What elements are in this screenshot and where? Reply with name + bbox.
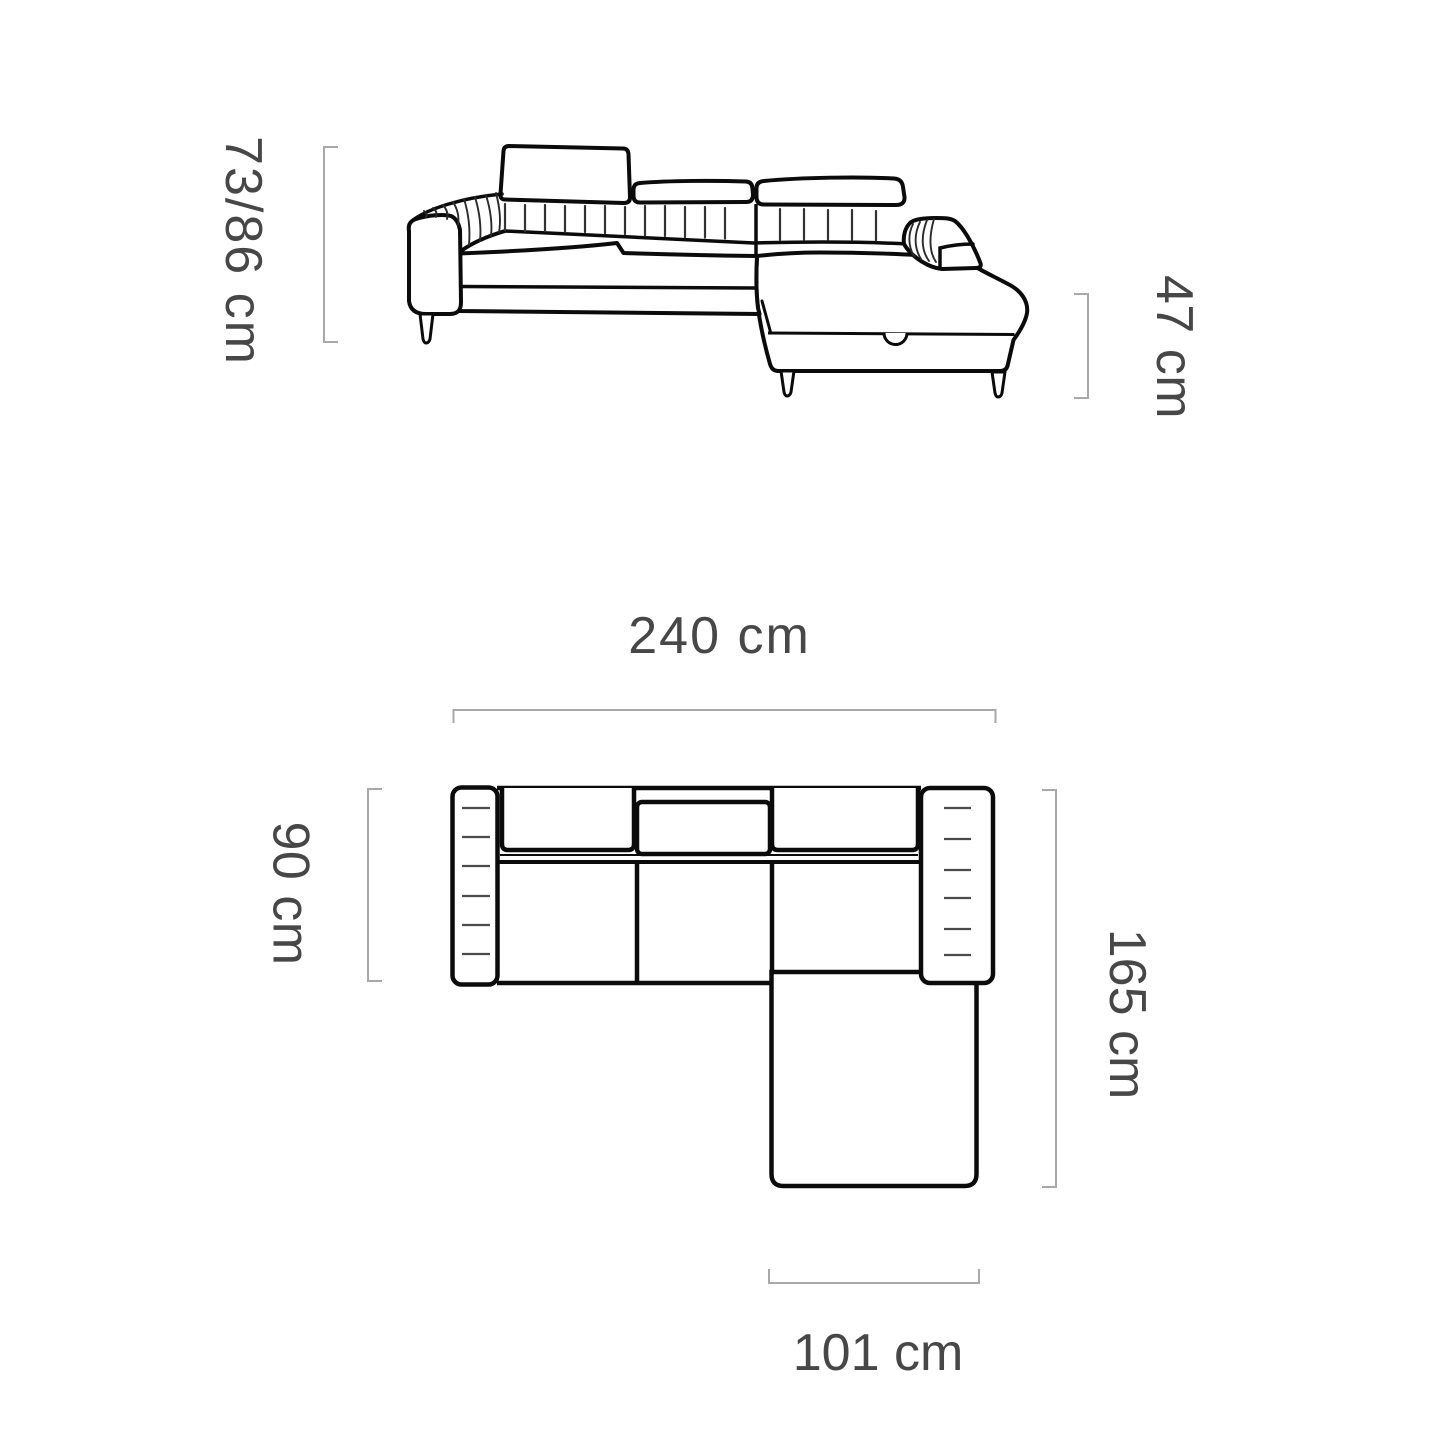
svg-text:90 cm: 90 cm — [261, 821, 319, 965]
svg-text:73/86 cm: 73/86 cm — [214, 136, 272, 366]
svg-text:101 cm: 101 cm — [793, 1324, 964, 1382]
svg-text:240 cm: 240 cm — [628, 607, 811, 665]
svg-text:165 cm: 165 cm — [1098, 929, 1156, 1100]
svg-text:47 cm: 47 cm — [1145, 275, 1203, 419]
